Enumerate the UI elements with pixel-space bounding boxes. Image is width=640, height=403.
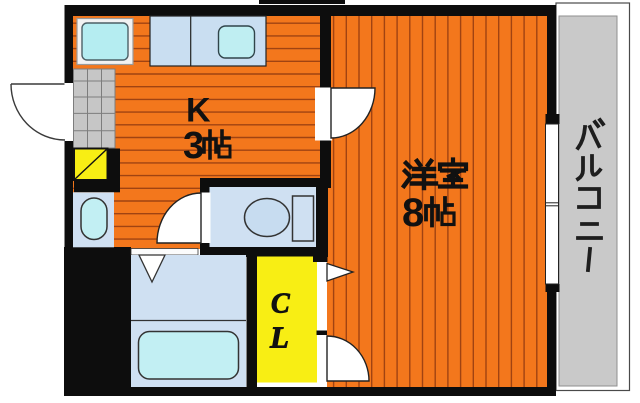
svg-text:C: C [271,289,290,320]
svg-text:L: L [269,320,289,355]
svg-text:8: 8 [402,191,424,235]
svg-text:K: K [186,92,211,130]
svg-text:3: 3 [183,125,204,167]
